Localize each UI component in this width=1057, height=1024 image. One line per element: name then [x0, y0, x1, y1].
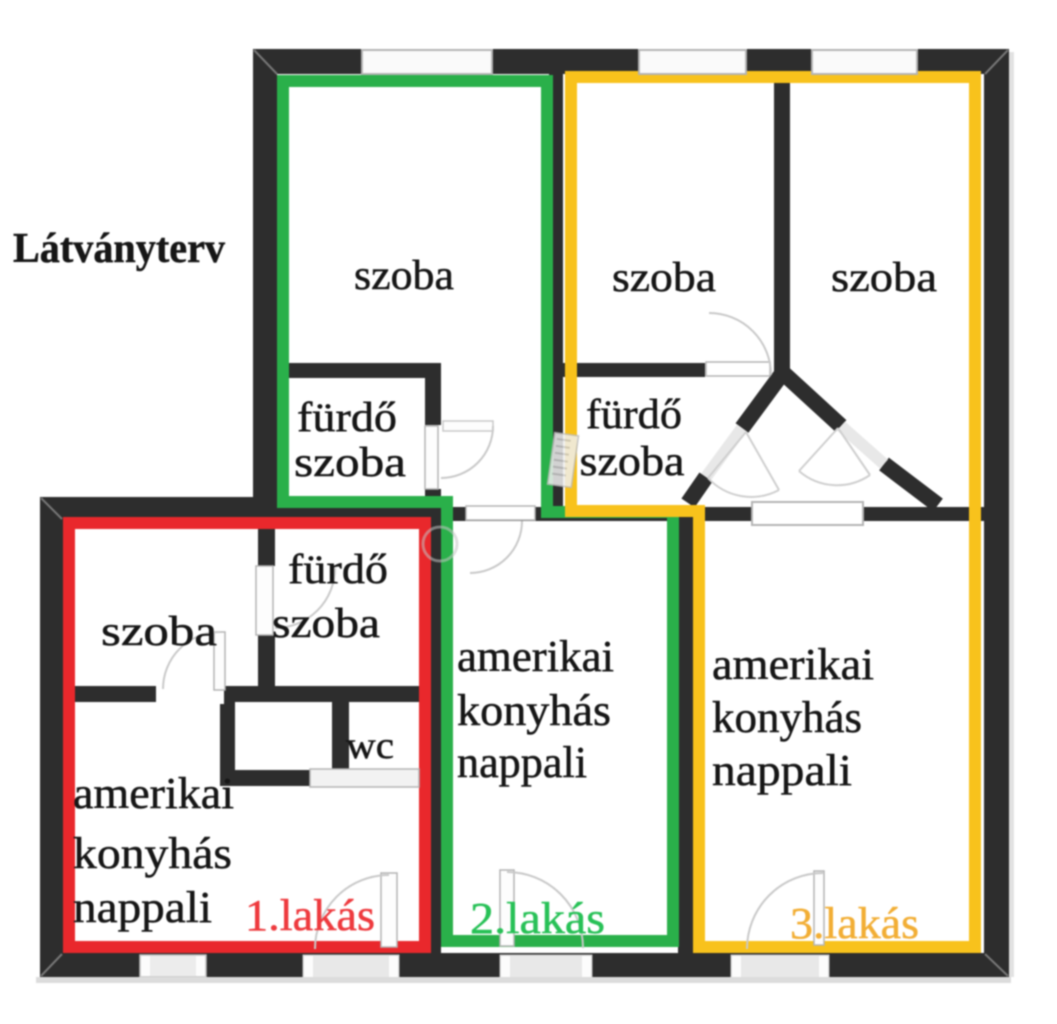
svg-text:szoba: szoba [294, 440, 406, 486]
svg-text:1.lakás: 1.lakás [245, 891, 375, 940]
svg-text:nappali: nappali [712, 746, 852, 795]
svg-text:konyhás: konyhás [457, 686, 611, 735]
svg-text:szoba: szoba [831, 255, 937, 301]
svg-text:amerikai: amerikai [73, 769, 234, 818]
svg-text:szoba: szoba [354, 253, 454, 299]
svg-text:3.lakás: 3.lakás [790, 899, 919, 948]
svg-text:szoba: szoba [101, 609, 217, 655]
svg-text:konyhás: konyhás [712, 693, 862, 742]
svg-text:nappali: nappali [457, 738, 587, 787]
svg-text:szoba: szoba [580, 439, 685, 485]
svg-text:szoba: szoba [612, 255, 716, 301]
svg-text:2.lakás: 2.lakás [470, 894, 605, 943]
svg-text:konyhás: konyhás [73, 829, 232, 878]
svg-text:nappali: nappali [73, 883, 212, 932]
svg-text:wc: wc [346, 725, 394, 767]
svg-text:fürdő: fürdő [297, 395, 397, 441]
svg-text:amerikai: amerikai [712, 640, 874, 689]
svg-text:fürdő: fürdő [586, 392, 682, 438]
svg-text:amerikai: amerikai [457, 632, 614, 681]
svg-text:szoba: szoba [272, 601, 380, 647]
svg-text:fürdő: fürdő [288, 547, 388, 593]
svg-text:Látványterv: Látványterv [13, 226, 225, 272]
